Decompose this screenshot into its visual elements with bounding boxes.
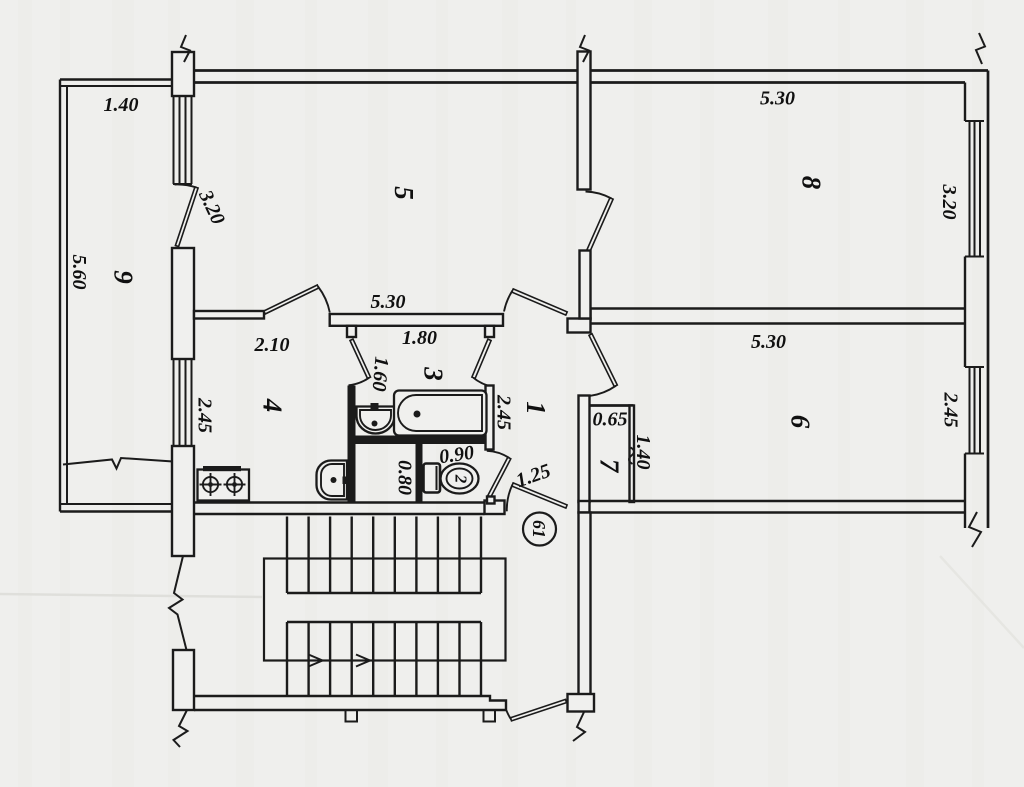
svg-text:1: 1 bbox=[521, 401, 551, 415]
svg-text:1.40: 1.40 bbox=[104, 94, 139, 116]
svg-text:1.80: 1.80 bbox=[402, 327, 437, 349]
svg-text:4: 4 bbox=[258, 398, 288, 413]
svg-text:0.80: 0.80 bbox=[394, 460, 416, 495]
svg-text:9: 9 bbox=[109, 270, 139, 284]
svg-text:2.10: 2.10 bbox=[254, 334, 290, 356]
svg-text:8: 8 bbox=[797, 176, 827, 190]
svg-text:2.45: 2.45 bbox=[194, 397, 216, 433]
svg-text:5.30: 5.30 bbox=[751, 331, 786, 353]
svg-text:1.40: 1.40 bbox=[632, 435, 654, 470]
svg-text:2: 2 bbox=[452, 474, 471, 484]
svg-text:5.30: 5.30 bbox=[760, 88, 795, 110]
svg-text:3.20: 3.20 bbox=[938, 184, 960, 220]
svg-text:2.45: 2.45 bbox=[940, 392, 962, 428]
svg-text:3: 3 bbox=[419, 366, 449, 381]
svg-text:5: 5 bbox=[389, 186, 419, 200]
svg-text:5.30: 5.30 bbox=[371, 291, 406, 313]
svg-text:5.60: 5.60 bbox=[68, 255, 90, 290]
svg-text:1.60: 1.60 bbox=[368, 356, 393, 393]
svg-text:0.65: 0.65 bbox=[593, 409, 628, 431]
svg-text:6: 6 bbox=[786, 415, 816, 429]
svg-text:2.45: 2.45 bbox=[493, 394, 515, 430]
svg-text:7: 7 bbox=[595, 459, 625, 474]
svg-text:61: 61 bbox=[529, 520, 549, 538]
